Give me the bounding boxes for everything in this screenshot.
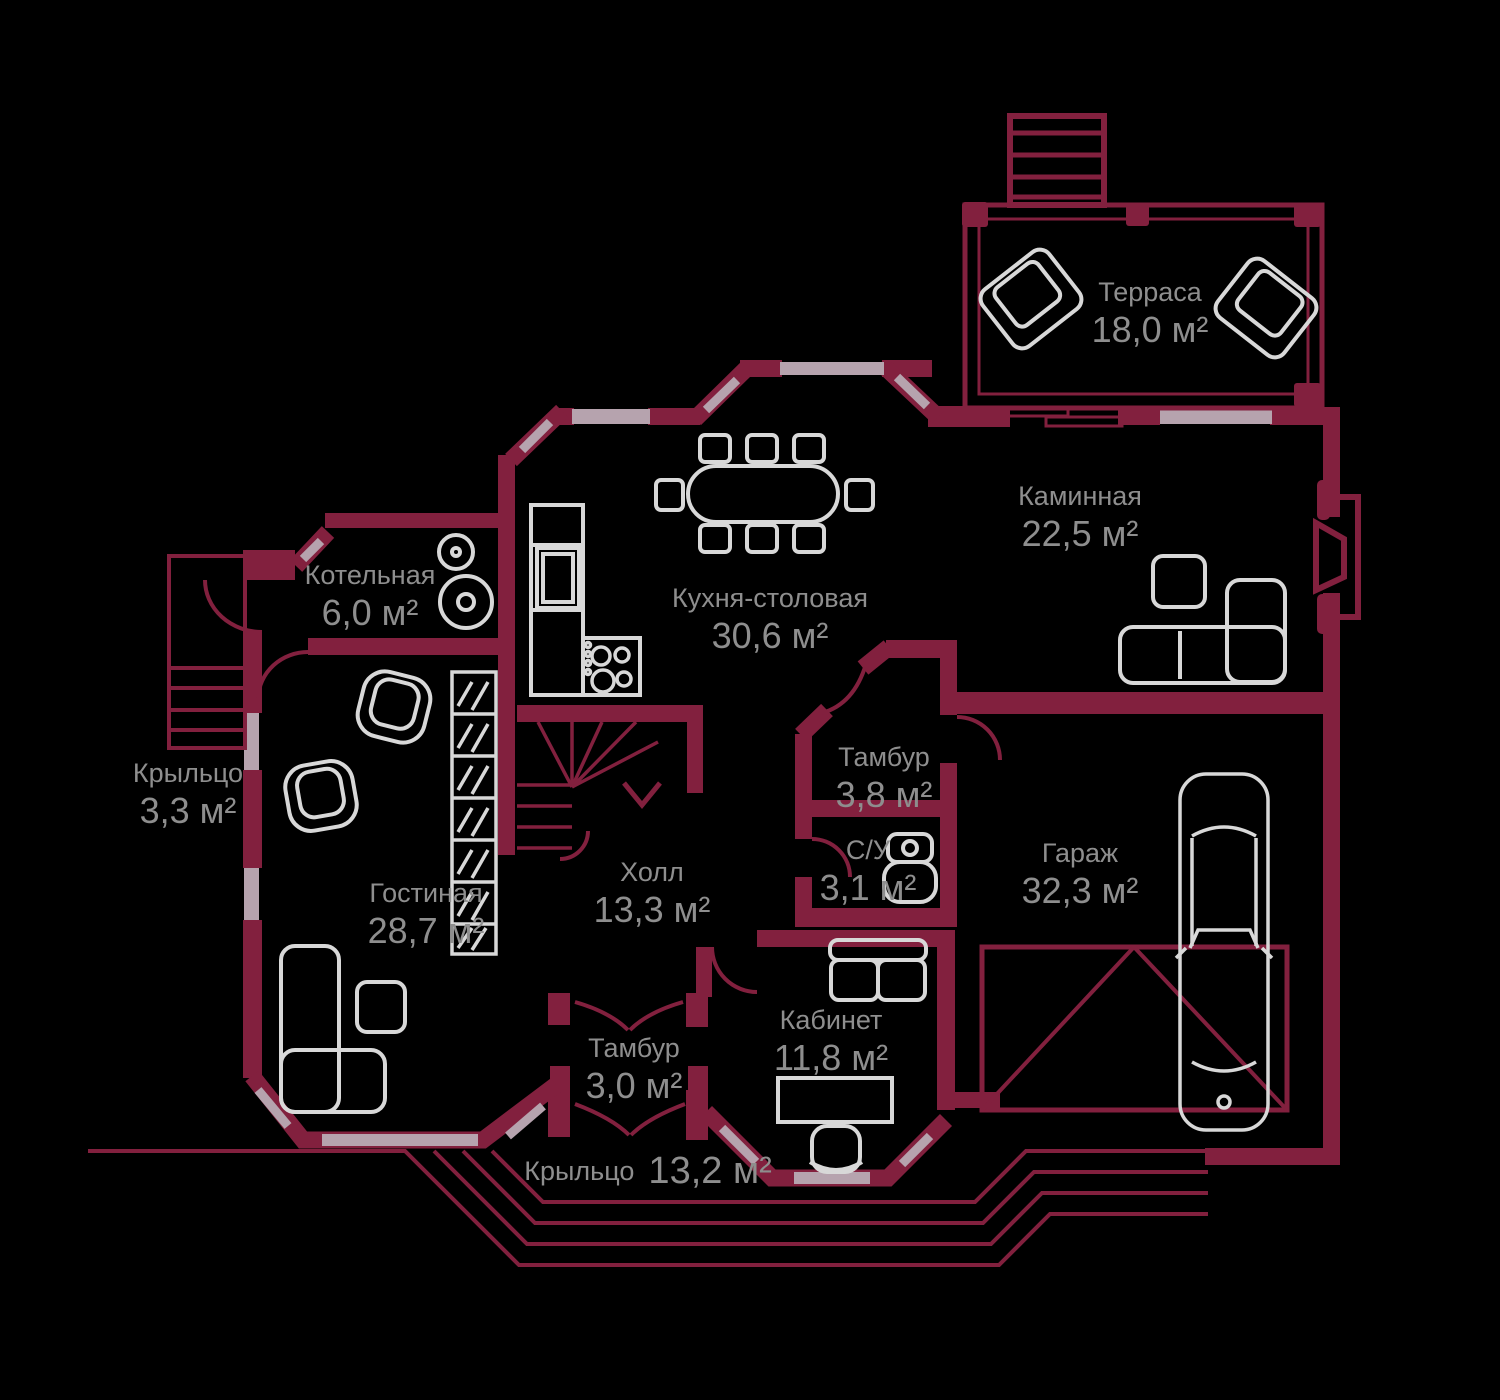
fridge-icon: [543, 554, 573, 602]
coffee-table: [357, 982, 405, 1032]
room-name: Терраса: [1092, 276, 1209, 309]
room-area: 18,0 м²: [1092, 309, 1209, 351]
kitchen-counter: [531, 505, 640, 695]
room-area: 6,0 м²: [305, 592, 436, 634]
room-label-fireplace-room: Каминная 22,5 м²: [1018, 480, 1142, 555]
fireplace-room-sofa: [1120, 556, 1285, 683]
room-area: 3,8 м²: [836, 774, 933, 816]
room-name: Гостиная: [368, 877, 485, 910]
study-sofa: [830, 940, 926, 1000]
room-name: Кухня-столовая: [672, 582, 868, 615]
room-label-boiler-room: Котельная 6,0 м²: [305, 559, 436, 634]
armchair-icon: [976, 245, 1087, 353]
room-name: С/У: [820, 834, 917, 867]
desk-icon: [778, 1078, 892, 1122]
room-name: Крыльцо: [133, 757, 243, 790]
room-name: Котельная: [305, 559, 436, 592]
stairs-interior: [517, 722, 658, 848]
room-label-terrace: Терраса 18,0 м²: [1092, 276, 1209, 351]
terrace-stairs: [1010, 116, 1104, 205]
living-room-sofa: [281, 946, 405, 1112]
opening-mark: [624, 783, 660, 805]
chair-icon: [700, 525, 730, 552]
chair-icon: [846, 480, 873, 510]
room-area: 13,2 м²: [648, 1150, 771, 1192]
chair-icon: [700, 435, 730, 462]
floor-plan-canvas: Терраса 18,0 м² Каминная 22,5 м² Кухня-с…: [0, 0, 1500, 1400]
room-label-garage: Гараж 32,3 м²: [1022, 837, 1139, 912]
room-area: 32,3 м²: [1022, 870, 1139, 912]
room-label-study: Кабинет 11,8 м²: [774, 1004, 888, 1079]
room-label-kitchen-dining: Кухня-столовая 30,6 м²: [672, 582, 868, 657]
room-name: Гараж: [1022, 837, 1139, 870]
chair-icon: [656, 480, 683, 510]
stove-icon: [586, 643, 632, 693]
room-label-hall: Холл 13,3 м²: [594, 856, 711, 931]
room-name: Холл: [594, 856, 711, 889]
chair-icon: [794, 525, 824, 552]
boiler-icon: [439, 535, 492, 628]
chair-icon: [747, 525, 777, 552]
room-name: Кабинет: [774, 1004, 888, 1037]
room-name: Тамбур: [586, 1032, 683, 1065]
armchair-icon: [282, 758, 360, 835]
chair-icon: [794, 435, 824, 462]
garage-door: [982, 947, 1287, 1110]
room-label-living-room: Гостиная 28,7 м²: [368, 877, 485, 952]
room-name: Крыльцо: [524, 1155, 634, 1188]
room-name: Тамбур: [836, 741, 933, 774]
room-area: 28,7 м²: [368, 910, 485, 952]
room-label-bathroom: С/У 3,1 м²: [820, 834, 917, 909]
room-area: 3,1 м²: [820, 867, 917, 909]
room-area: 13,3 м²: [594, 889, 711, 931]
desk-chair-icon: [810, 1126, 862, 1172]
room-area: 3,3 м²: [133, 790, 243, 832]
room-area: 3,0 м²: [586, 1065, 683, 1107]
side-table: [1153, 556, 1205, 607]
armchair-icon: [1211, 254, 1322, 362]
chair-icon: [747, 435, 777, 462]
room-area: 22,5 м²: [1018, 513, 1142, 555]
room-label-vestibule-top: Тамбур 3,8 м²: [836, 741, 933, 816]
room-label-porch-left: Крыльцо 3,3 м²: [133, 757, 243, 832]
room-label-porch-front: Крыльцо 13,2 м²: [524, 1150, 771, 1192]
room-name: Каминная: [1018, 480, 1142, 513]
armchair-icon: [353, 667, 435, 747]
room-area: 11,8 м²: [774, 1037, 888, 1079]
room-label-vestibule-bottom: Тамбур 3,0 м²: [586, 1032, 683, 1107]
dining-table: [656, 435, 873, 552]
room-area: 30,6 м²: [672, 615, 868, 657]
